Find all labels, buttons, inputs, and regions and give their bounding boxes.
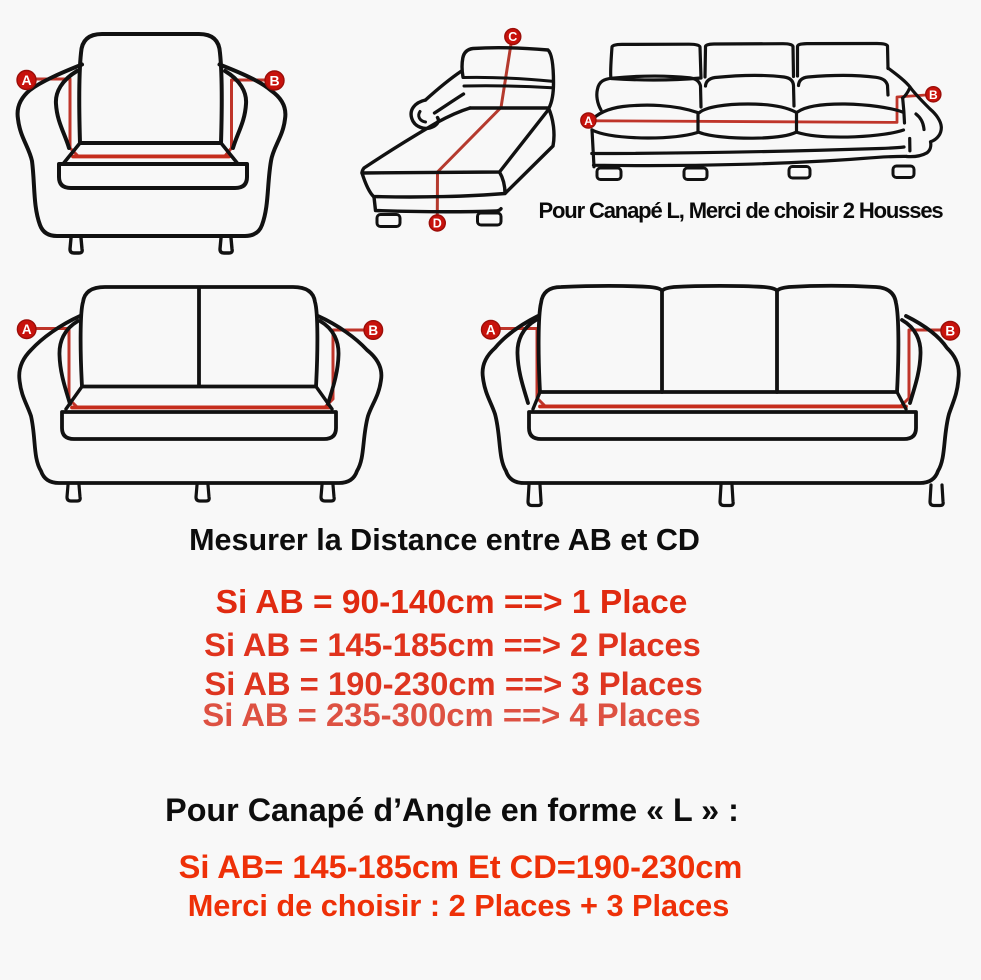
svg-text:A: A	[584, 114, 593, 128]
svg-text:D: D	[433, 217, 442, 231]
svg-text:C: C	[508, 30, 517, 44]
svg-text:A: A	[486, 323, 496, 338]
svg-text:B: B	[929, 88, 938, 102]
svg-text:B: B	[368, 323, 378, 338]
svg-text:B: B	[945, 324, 955, 339]
svg-text:B: B	[269, 73, 279, 89]
svg-text:A: A	[21, 72, 31, 88]
svg-text:A: A	[22, 322, 32, 337]
